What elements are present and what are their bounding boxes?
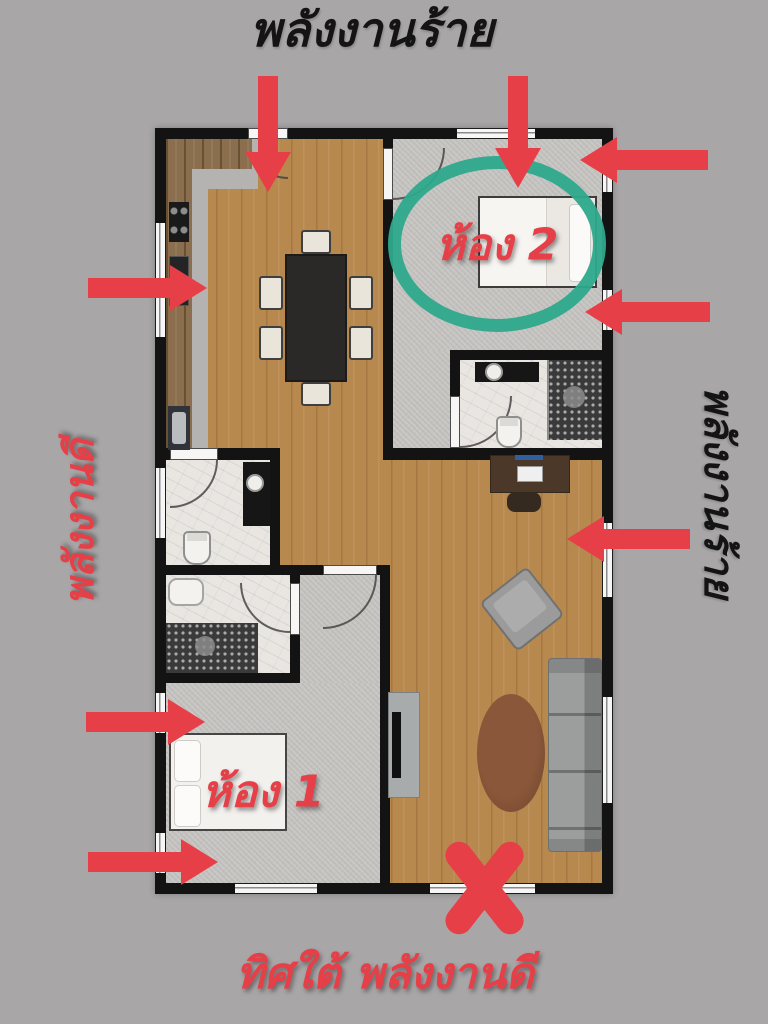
x-mark (437, 835, 531, 941)
powder-right-wall (270, 448, 280, 565)
bathroom-basin (168, 578, 204, 606)
room2-label: ห้อง 2 (436, 221, 559, 272)
kitchen-sink (168, 406, 190, 450)
arrow-right-room1-upper (86, 699, 205, 745)
arrow-left-living (567, 516, 690, 562)
arrow-right-room1-lower (88, 839, 218, 885)
ensuite-shower-drain (563, 386, 585, 408)
powder-toilet (183, 531, 211, 565)
powder-sink (246, 474, 264, 492)
shower-glass-divider (547, 360, 549, 440)
bathroom-shower-drain (195, 636, 215, 656)
top-title-label: พลังงานร้าย (0, 4, 756, 58)
ensuite-sink (485, 363, 503, 381)
dining-chair-right-1 (349, 276, 373, 310)
dining-chair-top (301, 230, 331, 254)
powder-vanity (243, 462, 270, 526)
dining-table (285, 254, 347, 382)
sofa (548, 658, 602, 852)
desk-chair (507, 492, 541, 512)
annotated-floor-plan-image: พลังงานร้าย (0, 0, 768, 1024)
arrow-down-room2 (496, 76, 540, 188)
bathroom-right-wall-upper (290, 565, 300, 583)
bedroom2-wall-stub (383, 139, 393, 148)
dining-chair-left-2 (259, 326, 283, 360)
ensuite-toilet (496, 416, 522, 448)
bathroom-top-wall (166, 565, 300, 575)
window-left-powder (155, 468, 166, 538)
arrow-left-room2-lower (585, 289, 710, 335)
dining-chair-left-1 (259, 276, 283, 310)
ensuite-door (450, 396, 460, 448)
window-right-living-lower (602, 697, 613, 803)
bedroom2-carpet-strip (393, 350, 450, 448)
bottom-caption-label: ทิศใต้ พลังงานดี (0, 950, 768, 999)
dining-chair-bottom (301, 382, 331, 406)
area-rug (477, 694, 545, 812)
window-bottom-left (235, 883, 317, 894)
ensuite-left-wall (450, 360, 460, 396)
desk-laptop (517, 466, 543, 482)
bedroom1-top-wall-right (377, 565, 380, 575)
bedroom1-top-wall-left (300, 565, 323, 575)
arrow-down-entry (246, 76, 290, 192)
arrow-left-room2-upper (580, 137, 708, 183)
ensuite-top-wall (450, 350, 602, 360)
bedroom1-door (323, 565, 377, 575)
right-side-label: พลังงานร้าย (690, 342, 742, 642)
tv (392, 712, 401, 778)
dining-chair-right-2 (349, 326, 373, 360)
bathroom-door (290, 583, 300, 635)
desk-monitor (515, 455, 543, 460)
bedroom2-door (383, 148, 393, 200)
stove (169, 202, 189, 242)
arrow-right-kitchen (88, 265, 207, 311)
left-side-label: พลังงานดี (57, 402, 107, 642)
room1-label: ห้อง 1 (202, 768, 325, 819)
bathroom-bottom-wall (166, 673, 300, 683)
